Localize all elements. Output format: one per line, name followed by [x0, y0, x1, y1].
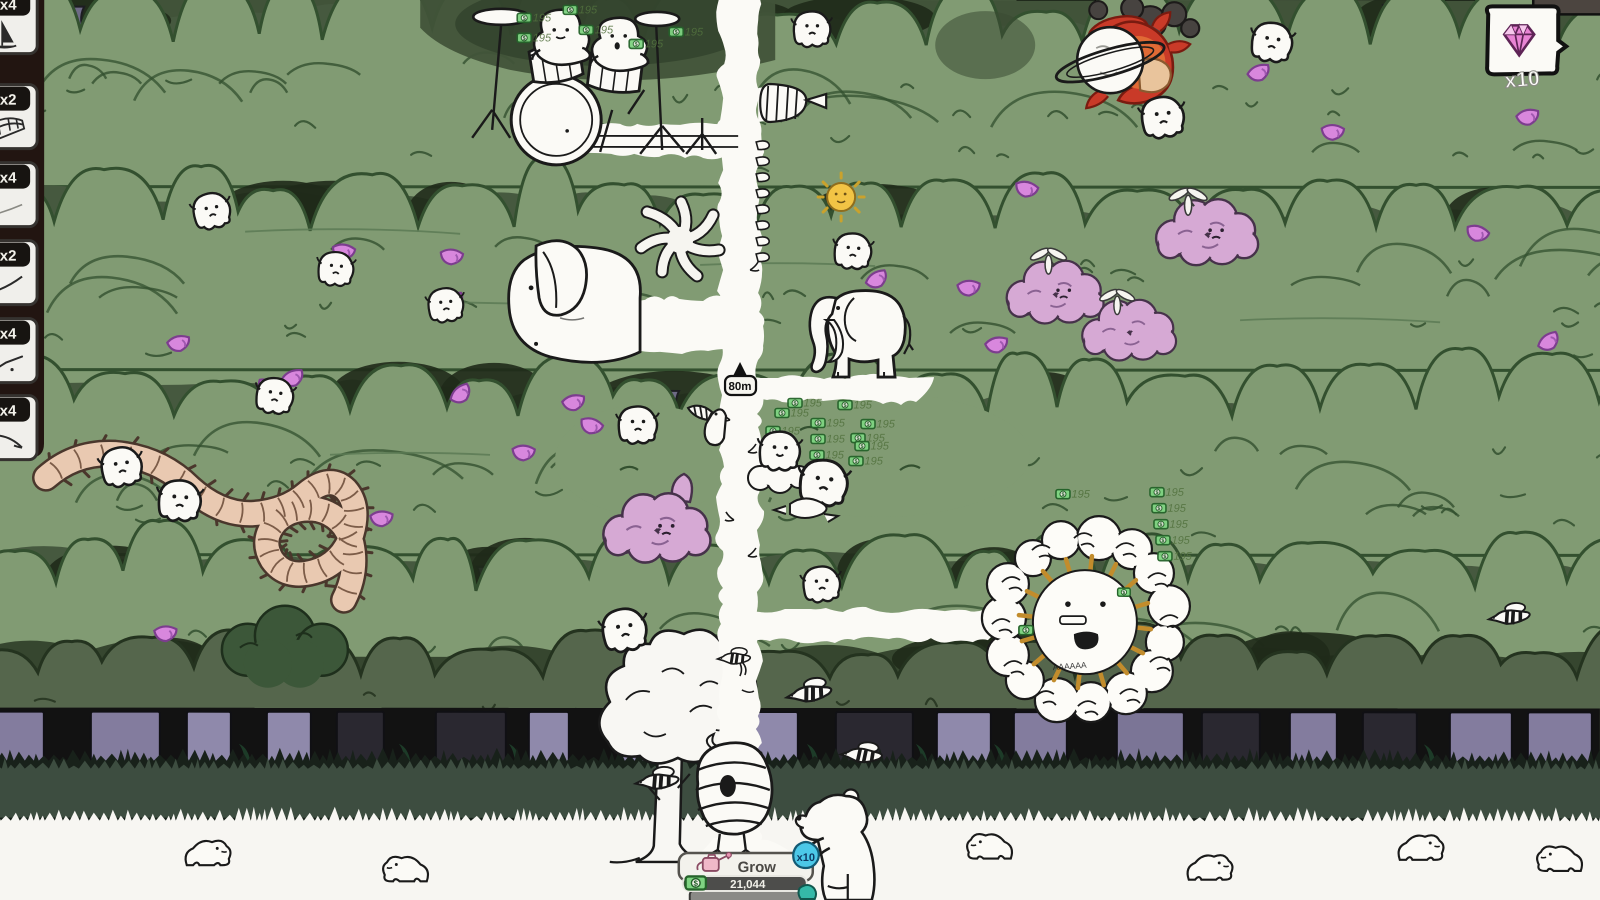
svg-text:$: $: [1155, 490, 1158, 496]
svg-text:$: $: [569, 8, 572, 14]
svg-text:195: 195: [827, 434, 846, 446]
svg-text:$: $: [523, 36, 526, 42]
svg-text:x4: x4: [0, 170, 17, 187]
svg-text:195: 195: [1165, 487, 1184, 499]
svg-text:195: 195: [579, 4, 598, 16]
svg-text:195: 195: [1169, 519, 1188, 531]
svg-text:195: 195: [804, 398, 823, 410]
svg-text:195: 195: [827, 418, 846, 430]
svg-text:$: $: [1157, 506, 1160, 512]
svg-text:$: $: [854, 459, 857, 465]
svg-text:195: 195: [1167, 503, 1186, 515]
svg-text:195: 195: [685, 26, 704, 38]
svg-text:195: 195: [533, 12, 552, 24]
svg-text:$: $: [815, 453, 818, 459]
svg-text:x4: x4: [0, 403, 17, 420]
svg-text:x4: x4: [0, 326, 17, 343]
svg-text:195: 195: [877, 419, 896, 431]
svg-text:195: 195: [1173, 551, 1192, 563]
svg-text:195: 195: [645, 38, 664, 50]
svg-text:$: $: [694, 879, 699, 888]
svg-text:80m: 80m: [729, 381, 752, 393]
svg-text:21,044: 21,044: [730, 879, 766, 891]
svg-text:$: $: [1163, 554, 1166, 560]
svg-text:$: $: [675, 30, 678, 36]
svg-text:$: $: [1123, 590, 1126, 596]
svg-text:195: 195: [1071, 489, 1090, 501]
svg-text:$: $: [793, 401, 796, 407]
svg-text:Grow: Grow: [738, 859, 777, 876]
svg-text:$: $: [1061, 492, 1064, 498]
svg-text:x10: x10: [797, 852, 815, 864]
svg-text:$: $: [843, 403, 846, 409]
svg-text:x2: x2: [0, 92, 17, 109]
svg-text:$: $: [1161, 538, 1164, 544]
svg-text:$: $: [780, 411, 783, 417]
svg-text:195: 195: [870, 441, 889, 453]
svg-text:$: $: [523, 16, 526, 22]
svg-text:$: $: [1024, 628, 1027, 634]
svg-text:$: $: [1159, 522, 1162, 528]
svg-text:$: $: [585, 28, 588, 34]
svg-text:x4: x4: [0, 0, 17, 14]
svg-text:$: $: [816, 421, 819, 427]
svg-text:195: 195: [864, 456, 883, 468]
svg-text:$: $: [635, 42, 638, 48]
svg-text:195: 195: [1171, 535, 1190, 547]
svg-text:195: 195: [533, 32, 552, 44]
svg-text:x10: x10: [1504, 67, 1541, 93]
svg-text:$: $: [866, 422, 869, 428]
svg-text:195: 195: [595, 24, 614, 36]
svg-text:$: $: [816, 437, 819, 443]
svg-text:195: 195: [854, 400, 873, 412]
svg-text:$: $: [860, 444, 863, 450]
svg-text:x2: x2: [0, 248, 16, 265]
